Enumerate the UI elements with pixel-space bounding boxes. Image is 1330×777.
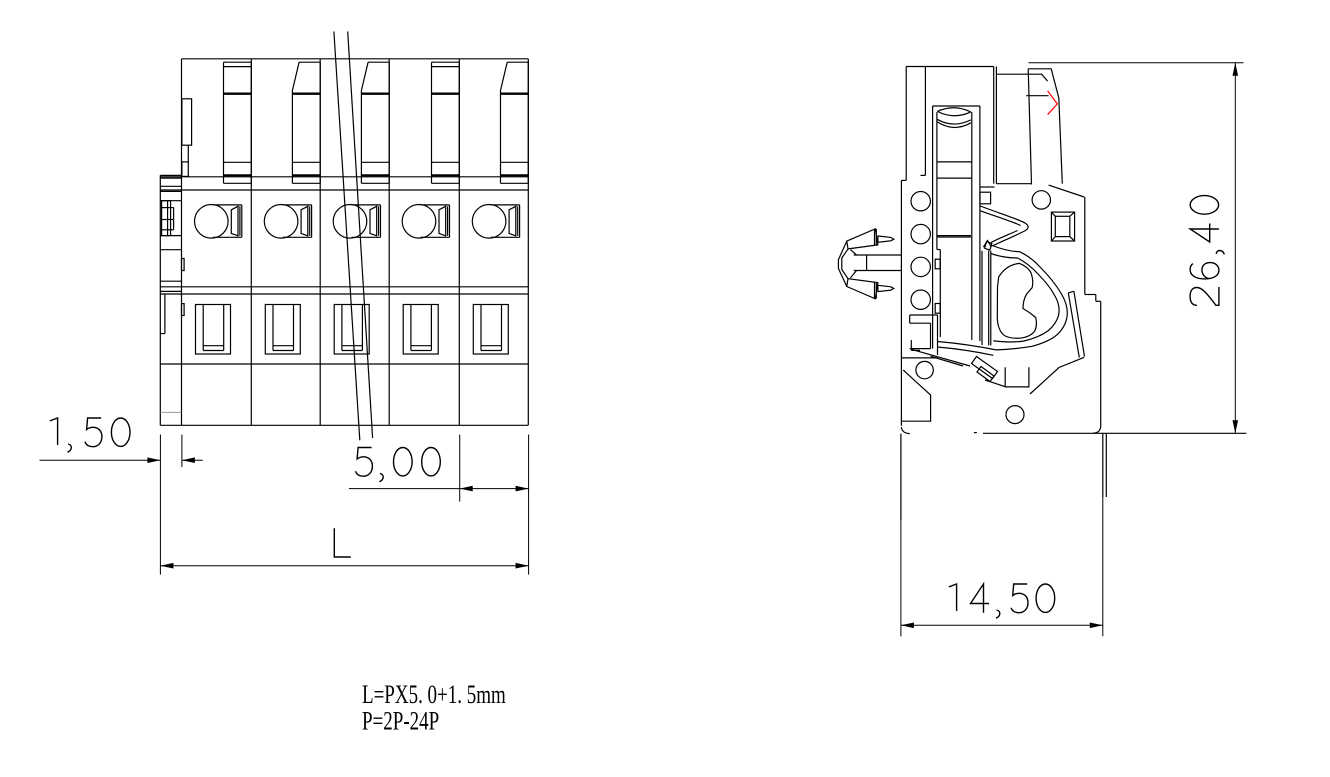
svg-text:L=PX5. 0+1. 5mm: L=PX5. 0+1. 5mm: [362, 680, 506, 709]
svg-text:P=2P-24P: P=2P-24P: [362, 707, 439, 736]
